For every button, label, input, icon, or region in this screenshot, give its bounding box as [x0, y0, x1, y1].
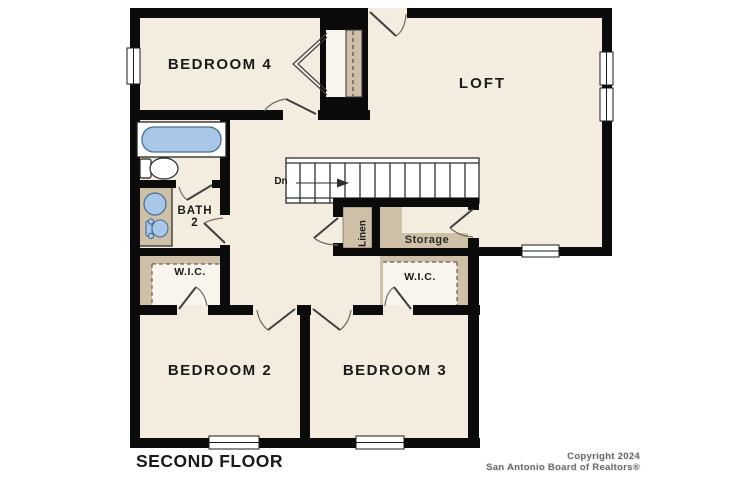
wic-left-closet	[135, 256, 220, 305]
window-bedroom4-left	[127, 48, 140, 84]
bathtub-icon	[137, 122, 226, 157]
wic-right-label: W.I.C.	[390, 271, 450, 283]
window-bedroom3	[356, 436, 404, 449]
window-loft-bottom	[522, 245, 559, 257]
sink-icon	[144, 193, 166, 215]
window-loft-right-1	[600, 52, 613, 85]
copyright-line1: Copyright 2024	[430, 451, 640, 462]
copyright-notice: Copyright 2024 San Antonio Board of Real…	[430, 451, 640, 473]
loft-label: LOFT	[440, 75, 525, 92]
floor-title: SECOND FLOOR	[136, 451, 356, 472]
storage-label: Storage	[395, 234, 459, 246]
bath-label: BATH 2	[168, 205, 222, 229]
bedroom3-label: BEDROOM 3	[325, 362, 465, 379]
wic-left-label: W.I.C.	[160, 266, 220, 278]
staircase	[286, 158, 479, 203]
linen-label: Linen	[358, 214, 371, 254]
floor-plan-page: BEDROOM 4 LOFT BATH 2 W.I.C. W.I.C. Line…	[0, 0, 740, 480]
window-bedroom2	[209, 436, 259, 449]
window-loft-right-2	[600, 88, 613, 121]
bedroom4-label: BEDROOM 4	[150, 56, 290, 73]
bedroom2-label: BEDROOM 2	[150, 362, 290, 379]
stairs-dn-label: Dn	[269, 176, 293, 187]
toilet-icon	[140, 158, 178, 179]
commode-icon	[146, 219, 168, 239]
copyright-line2: San Antonio Board of Realtors®	[430, 462, 640, 473]
